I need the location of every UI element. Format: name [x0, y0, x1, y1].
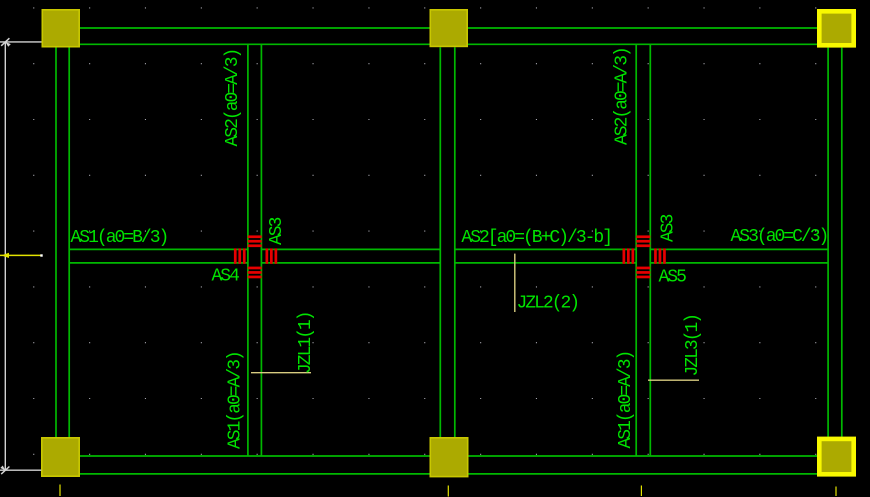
- svg-text:42: 42: [0, 145, 2, 155]
- svg-text:JZL1(1): JZL1(1): [296, 312, 316, 374]
- svg-text:AS5: AS5: [659, 268, 687, 288]
- svg-text:AS1(a0=A/3): AS1(a0=A/3): [226, 352, 246, 449]
- svg-text:AS2(a0=A/3): AS2(a0=A/3): [613, 48, 633, 145]
- svg-text:42: 42: [0, 360, 2, 370]
- svg-text:AS1(a0=B/3): AS1(a0=B/3): [71, 228, 168, 248]
- svg-text:JZL3(1): JZL3(1): [683, 315, 703, 377]
- svg-text:AS4: AS4: [212, 267, 240, 287]
- svg-text:AS3(a0=C/3): AS3(a0=C/3): [731, 227, 828, 247]
- svg-text:AS3: AS3: [659, 214, 679, 242]
- svg-text:AS2[a0=(B+C)/3-b]: AS2[a0=(B+C)/3-b]: [461, 228, 611, 248]
- svg-text:JZL2(2): JZL2(2): [517, 294, 579, 314]
- svg-text:AS2(a0=A/3): AS2(a0=A/3): [223, 50, 243, 147]
- svg-text:AS3: AS3: [267, 217, 287, 245]
- svg-text:AS1(a0=A/3): AS1(a0=A/3): [616, 352, 636, 449]
